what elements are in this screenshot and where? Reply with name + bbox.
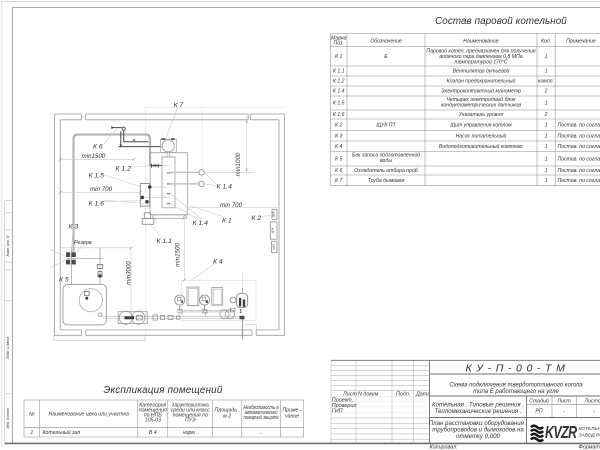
svg-text:Котельный зал: Котельный зал bbox=[43, 429, 81, 436]
svg-text:К 1.1: К 1.1 bbox=[157, 238, 173, 245]
svg-text:Поз.: Поз. bbox=[334, 41, 344, 47]
svg-text:Состав паровой котельной: Состав паровой котельной bbox=[435, 16, 567, 27]
svg-text:К 1.4: К 1.4 bbox=[333, 89, 345, 95]
svg-text:К 6: К 6 bbox=[335, 168, 342, 174]
svg-text:Формат: Формат bbox=[579, 444, 600, 450]
svg-text:Лист: Лист bbox=[556, 399, 571, 405]
svg-text:Подп. и дата: Подп. и дата bbox=[6, 337, 10, 360]
svg-text:К 3: К 3 bbox=[69, 223, 79, 230]
svg-text:-: - bbox=[260, 431, 262, 437]
svg-text:Дата: Дата bbox=[415, 391, 430, 397]
svg-text:м 2: м 2 bbox=[223, 414, 231, 420]
svg-text:Постав. по согласованию: Постав. по согласованию bbox=[558, 123, 600, 129]
svg-text:Наименование цеха или участка: Наименование цеха или участка bbox=[49, 412, 129, 418]
svg-text:воды: воды bbox=[380, 158, 392, 164]
svg-text:Взам. инв. N: Взам. инв. N bbox=[6, 235, 10, 256]
svg-text:105-03: 105-03 bbox=[145, 418, 161, 424]
svg-text:Листов: Листов bbox=[584, 399, 600, 405]
svg-text:Постав. по согласованию: Постав. по согласованию bbox=[558, 157, 600, 163]
svg-text:К 1.4: К 1.4 bbox=[217, 183, 233, 190]
svg-text:кондуктометрических датчиков: кондуктометрических датчиков bbox=[441, 102, 521, 108]
svg-text:компл.: компл. bbox=[538, 79, 554, 85]
svg-text:min1000: min1000 bbox=[235, 152, 242, 176]
svg-text:РП: РП bbox=[535, 409, 542, 415]
svg-text:К 6: К 6 bbox=[93, 144, 103, 151]
svg-text:К 1: К 1 bbox=[335, 54, 342, 60]
svg-text:1: 1 bbox=[545, 134, 548, 140]
svg-text:КУ-П-00-ТМ: КУ-П-00-ТМ bbox=[466, 363, 570, 375]
svg-text:Наименование: Наименование bbox=[463, 39, 499, 45]
svg-text:Е: Е bbox=[384, 54, 388, 60]
svg-text:К 1: К 1 bbox=[222, 218, 232, 225]
svg-text:1: 1 bbox=[545, 101, 548, 107]
svg-text:К 1.6: К 1.6 bbox=[89, 200, 105, 207]
svg-text:1: 1 bbox=[545, 54, 548, 60]
svg-text:Насос питательный: Насос питательный bbox=[456, 133, 507, 140]
svg-text:отметку 0,000: отметку 0,000 bbox=[456, 433, 500, 440]
svg-text:Охладитель отбора проб: Охладитель отбора проб bbox=[354, 168, 418, 174]
svg-text:В 4: В 4 bbox=[149, 430, 157, 436]
svg-text:К 3: К 3 bbox=[335, 134, 342, 140]
svg-text:температурой 170°С: температурой 170°С bbox=[454, 59, 507, 66]
svg-text:Экспликация помещений: Экспликация помещений bbox=[104, 385, 223, 396]
svg-text:№: № bbox=[29, 412, 35, 418]
svg-text:К 7: К 7 bbox=[335, 178, 343, 184]
svg-text:К 2: К 2 bbox=[252, 215, 262, 222]
svg-text:1: 1 bbox=[30, 430, 33, 436]
svg-text:К 1.5: К 1.5 bbox=[89, 173, 105, 180]
svg-text:норм .: норм . bbox=[183, 430, 198, 436]
svg-text:К 4: К 4 bbox=[213, 258, 223, 265]
svg-text:KVZR: KVZR bbox=[545, 422, 577, 442]
svg-text:-: - bbox=[593, 409, 595, 415]
svg-text:Постав. по согласованию: Постав. по согласованию bbox=[558, 144, 600, 150]
svg-text:1: 1 bbox=[545, 144, 548, 150]
svg-text:-: - bbox=[563, 409, 565, 415]
svg-text:Тепломеханические решения .: Тепломеханические решения . bbox=[435, 408, 522, 415]
svg-text:min1500: min1500 bbox=[82, 153, 106, 160]
svg-text:Вентилятор дутьевой: Вентилятор дутьевой bbox=[453, 68, 510, 75]
svg-text:К 2: К 2 bbox=[335, 123, 342, 129]
svg-text:К 5: К 5 bbox=[335, 157, 342, 163]
svg-text:типа Е работающего на угле: типа Е работающего на угле bbox=[473, 389, 559, 395]
svg-text:ЩУК: ЩУК bbox=[272, 211, 276, 217]
svg-text:К 1.5: К 1.5 bbox=[333, 101, 345, 107]
svg-text:Подп.: Подп. bbox=[396, 391, 410, 397]
svg-text:Резерв: Резерв bbox=[74, 240, 92, 246]
svg-text:1: 1 bbox=[545, 123, 548, 129]
svg-text:N докум: N докум bbox=[358, 391, 379, 397]
svg-text:1: 1 bbox=[545, 178, 548, 184]
svg-text:К 1.2: К 1.2 bbox=[333, 79, 345, 85]
svg-text:ГИП: ГИП bbox=[332, 408, 343, 414]
svg-text:min 700: min 700 bbox=[220, 202, 243, 209]
svg-text:1: 1 bbox=[545, 69, 548, 75]
svg-text:Клапан предохранительный: Клапан предохранительный bbox=[447, 78, 516, 85]
svg-text:1: 1 bbox=[545, 157, 548, 163]
svg-text:Схема подключения твердотоплив: Схема подключения твердотопливного котла bbox=[449, 383, 583, 389]
svg-text:1: 1 bbox=[545, 168, 548, 174]
svg-text:ЩУК: ЩУК bbox=[271, 244, 275, 250]
svg-text:Инв. N подл.: Инв. N подл. bbox=[6, 407, 10, 428]
svg-text:КОТЕЛЬНЫЙ: КОТЕЛЬНЫЙ bbox=[579, 424, 600, 432]
svg-text:Постав. по согласованию: Постав. по согласованию bbox=[558, 178, 600, 184]
svg-text:Щит управления котлом: Щит управления котлом bbox=[450, 123, 512, 129]
svg-text:пожарной защите: пожарной защите bbox=[244, 414, 279, 421]
svg-text:Водоподготовительный комплекс: Водоподготовительный комплекс bbox=[439, 143, 524, 150]
svg-text:min1500: min1500 bbox=[174, 243, 181, 267]
svg-text:Копировал:: Копировал: bbox=[430, 444, 459, 450]
svg-text:Указатель уровня: Указатель уровня bbox=[459, 112, 503, 118]
svg-text:2: 2 bbox=[544, 112, 548, 118]
svg-text:min3000: min3000 bbox=[126, 261, 133, 285]
svg-text:Труба дымовая: Труба дымовая bbox=[368, 178, 405, 184]
svg-text:ПУЭ: ПУЭ bbox=[185, 418, 196, 424]
svg-text:К 1.2: К 1.2 bbox=[116, 166, 132, 173]
svg-text:К 4: К 4 bbox=[335, 144, 342, 150]
svg-text:Стадий: Стадий bbox=[529, 398, 549, 405]
svg-text:Примечание: Примечание bbox=[566, 39, 596, 45]
svg-text:Кол.: Кол. bbox=[541, 39, 551, 45]
svg-text:К 1.6: К 1.6 bbox=[333, 112, 345, 118]
svg-text:ЩУК: ЩУК bbox=[271, 227, 275, 233]
svg-text:ЗАВОД РОСС: ЗАВОД РОСС bbox=[579, 432, 600, 438]
svg-text:Постав. по согласованию: Постав. по согласованию bbox=[558, 168, 600, 174]
svg-text:2: 2 bbox=[544, 89, 548, 95]
svg-text:Электроконтактный манометр: Электроконтактный манометр bbox=[441, 88, 521, 95]
svg-text:К 1.1: К 1.1 bbox=[333, 69, 345, 75]
svg-text:К 5: К 5 bbox=[59, 276, 69, 283]
svg-text:Обозначение: Обозначение bbox=[370, 39, 402, 45]
svg-text:К 1.4: К 1.4 bbox=[193, 220, 209, 227]
svg-text:чание: чание bbox=[285, 414, 299, 420]
svg-text:К 7: К 7 bbox=[174, 102, 184, 109]
svg-text:min 700: min 700 bbox=[90, 186, 113, 193]
svg-text:Постав. по согласованию: Постав. по согласованию bbox=[558, 134, 600, 140]
svg-text:ЩУК ПТ: ЩУК ПТ bbox=[376, 123, 396, 129]
